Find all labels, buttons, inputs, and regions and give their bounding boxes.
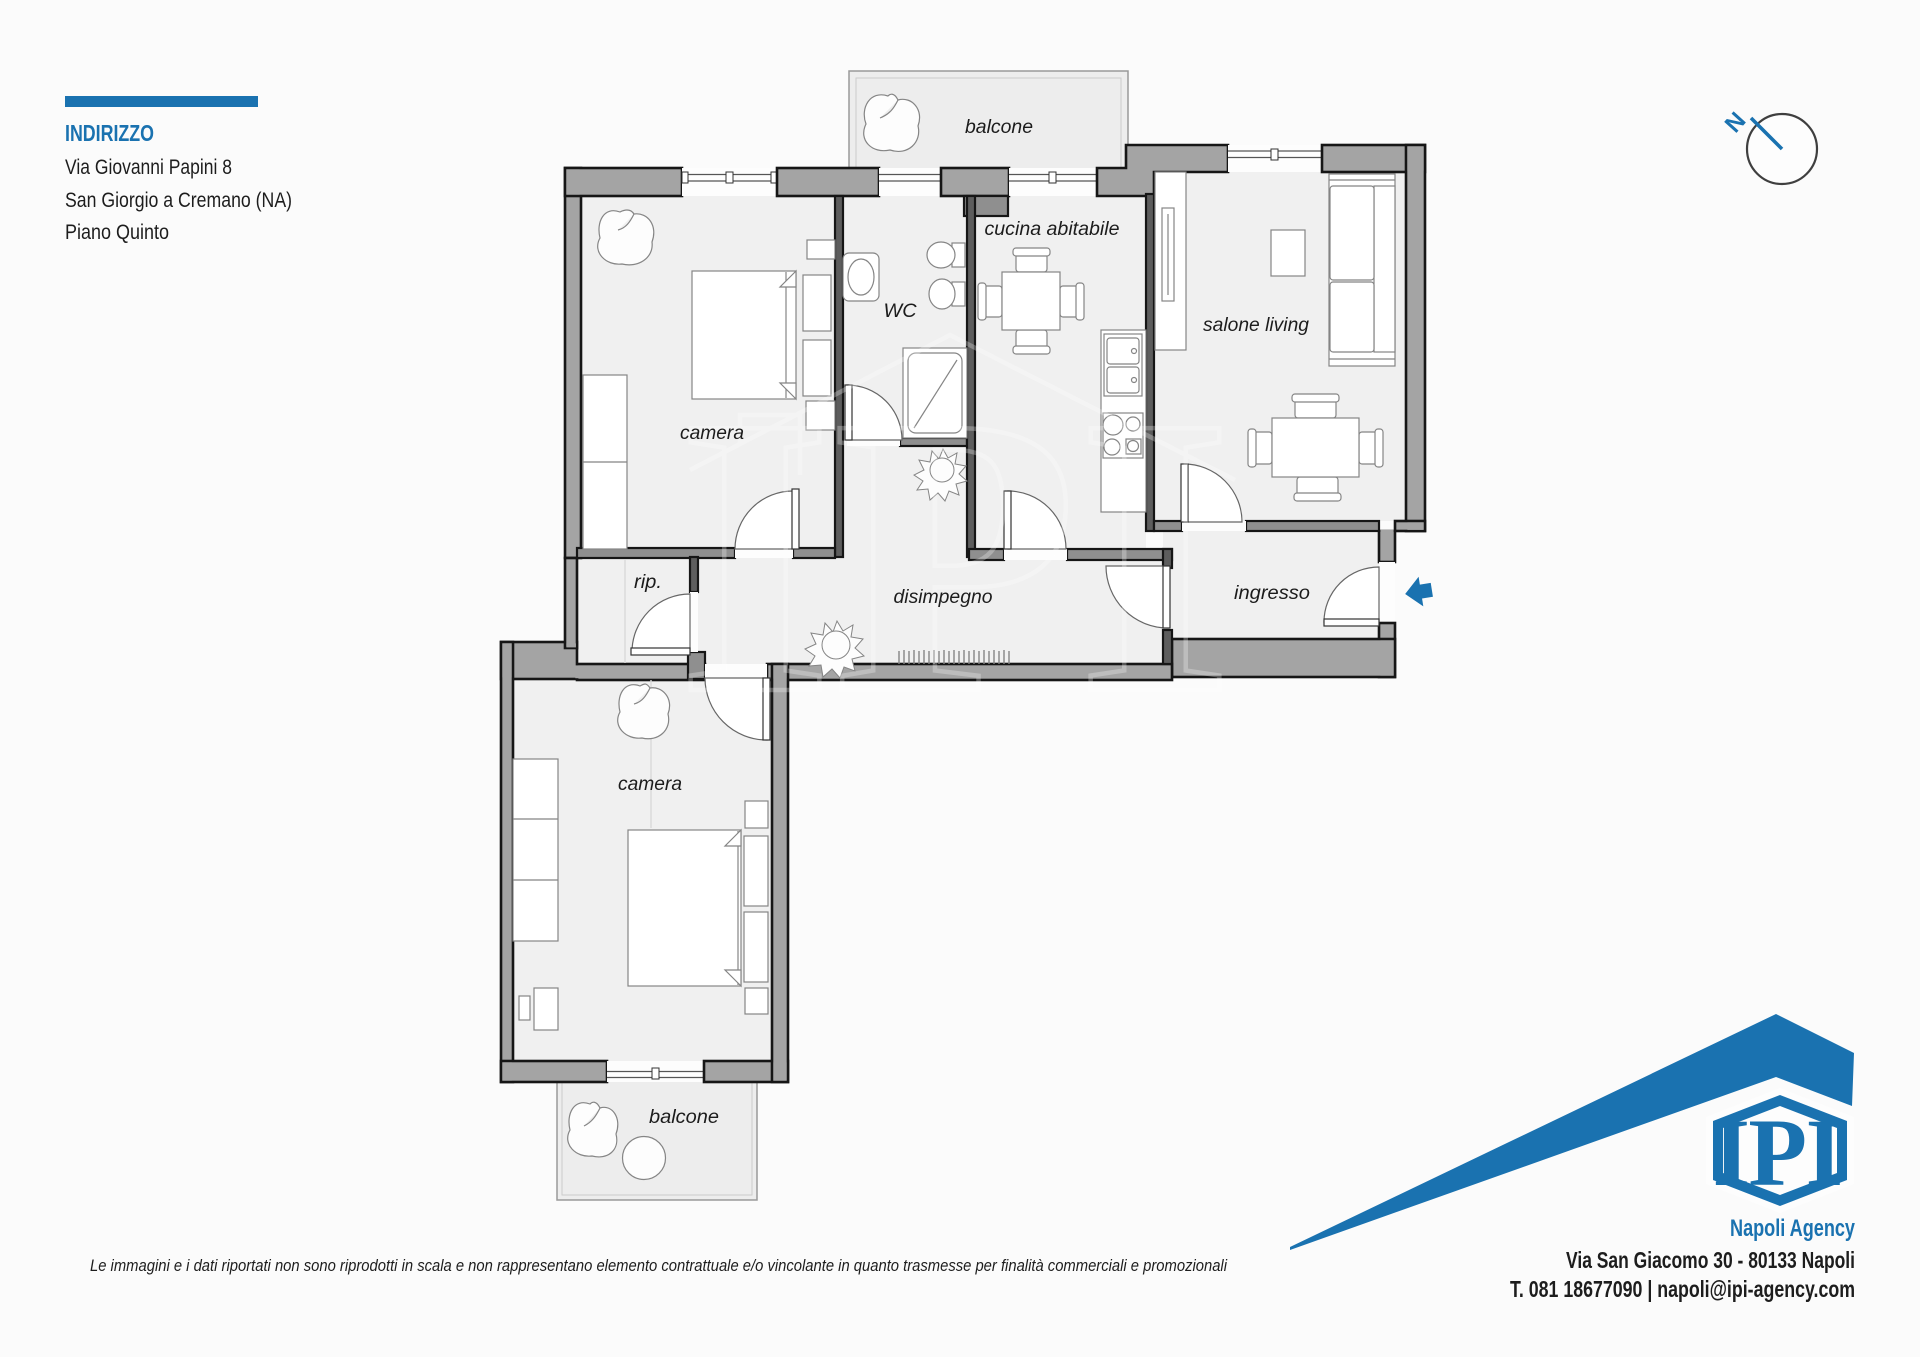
svg-text:balcone: balcone xyxy=(649,1107,719,1128)
svg-text:INDIRIZZO: INDIRIZZO xyxy=(65,120,154,146)
svg-text:salone living: salone living xyxy=(1203,315,1309,336)
svg-text:WC: WC xyxy=(884,301,917,322)
svg-text:T. 081 18677090 | napoli@ipi-a: T. 081 18677090 | napoli@ipi-agency.com xyxy=(1510,1276,1855,1302)
svg-text:rip.: rip. xyxy=(634,572,662,593)
svg-text:camera: camera xyxy=(680,423,744,444)
svg-text:San Giorgio a Cremano (NA): San Giorgio a Cremano (NA) xyxy=(65,189,292,212)
svg-text:disimpegno: disimpegno xyxy=(894,587,993,608)
svg-text:balcone: balcone xyxy=(965,117,1033,138)
svg-text:Via Giovanni Papini 8: Via Giovanni Papini 8 xyxy=(65,156,232,179)
svg-text:Napoli Agency: Napoli Agency xyxy=(1730,1215,1855,1242)
svg-text:IPI: IPI xyxy=(1713,1099,1842,1206)
svg-text:Piano Quinto: Piano Quinto xyxy=(65,221,169,244)
svg-text:cucina abitabile: cucina abitabile xyxy=(985,219,1120,240)
svg-text:Via San Giacomo 30 - 80133 Nap: Via San Giacomo 30 - 80133 Napoli xyxy=(1566,1247,1855,1273)
svg-text:Le immagini e i dati riportati: Le immagini e i dati riportati non sono … xyxy=(90,1256,1228,1275)
svg-text:ingresso: ingresso xyxy=(1234,583,1310,604)
svg-text:camera: camera xyxy=(618,774,682,795)
